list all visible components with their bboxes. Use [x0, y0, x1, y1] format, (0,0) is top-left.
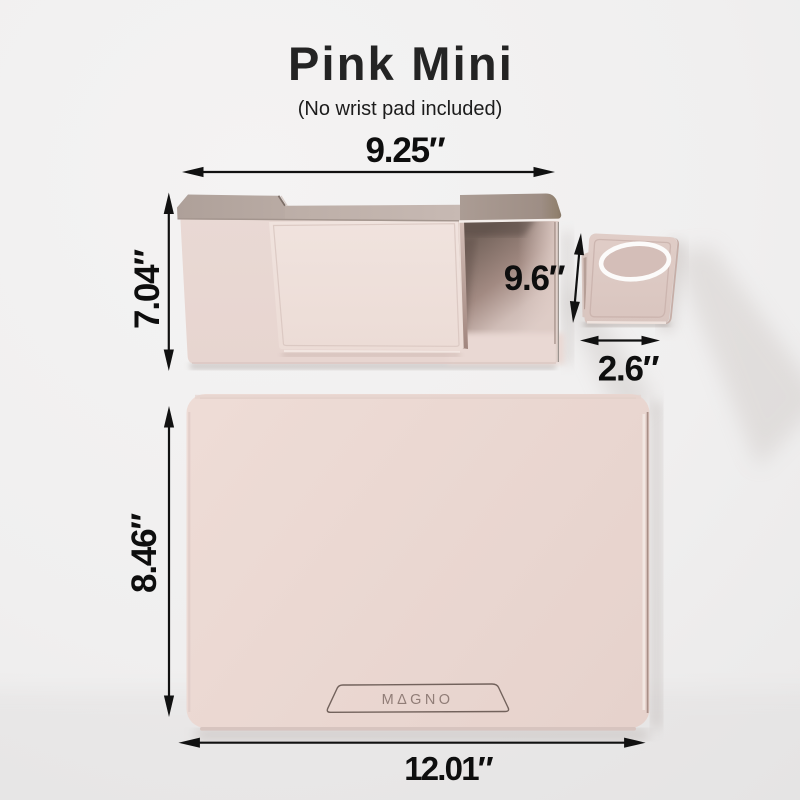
- svg-text:2.6″: 2.6″: [598, 350, 660, 389]
- svg-text:9.25″: 9.25″: [366, 131, 446, 170]
- svg-text:12.01″: 12.01″: [404, 750, 494, 787]
- svg-text:8.46″: 8.46″: [125, 513, 164, 593]
- svg-text:Pink Mini: Pink Mini: [288, 37, 514, 90]
- svg-text:9.6″: 9.6″: [504, 259, 566, 298]
- svg-text:(No wrist pad included): (No wrist pad included): [298, 98, 503, 120]
- svg-text:7.04″: 7.04″: [128, 249, 167, 329]
- svg-text:MΔGNO: MΔGNO: [382, 692, 454, 708]
